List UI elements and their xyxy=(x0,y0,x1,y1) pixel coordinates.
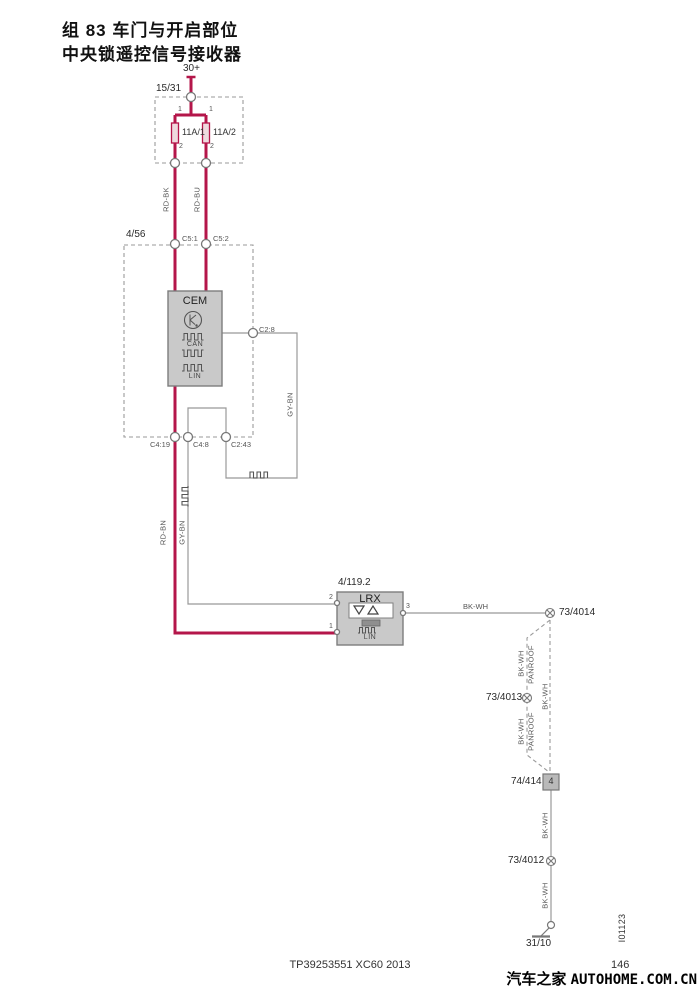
wire-label-bk-wh-panroof-lower: BK-WH xyxy=(517,702,526,762)
connector-circle-supply xyxy=(187,93,196,102)
receiver-block-icon xyxy=(362,620,380,626)
lrx-lin-label: LIN xyxy=(337,634,403,641)
wire-label-rd-bn: RD-BN xyxy=(159,503,168,563)
fuse1-pin-in: 1 xyxy=(178,106,182,113)
fuse2-pin-out: 2 xyxy=(210,143,214,150)
wire-label-panroof-lower: PANROOF xyxy=(527,702,536,762)
connector-circle-c2-43 xyxy=(222,433,231,442)
watermark: 汽车之家 AUTOHOME.COM.CN xyxy=(506,968,697,989)
connector-label-c4-8: C4:8 xyxy=(193,440,209,449)
receiver-window xyxy=(349,603,393,618)
connector-circle-c5-2 xyxy=(202,240,211,249)
connector-circle-c4-8 xyxy=(184,433,193,442)
lrx-pin2-label: 2 xyxy=(329,594,333,601)
wire-label-bk-wh-main: BK-WH xyxy=(541,667,550,727)
connector-circle-fuse1-out xyxy=(171,159,180,168)
lrx-pin1-label: 1 xyxy=(329,623,333,630)
fuse1-label: 11A/1 xyxy=(182,127,205,137)
connector-label-c2-43: C2:43 xyxy=(231,440,251,449)
lrx-pin3-label: 3 xyxy=(406,603,410,610)
wire-label-rd-bu: RD-BU xyxy=(193,170,202,230)
splice-label-73-4014: 73/4014 xyxy=(559,607,595,618)
connector-label-c5-1: C5:1 xyxy=(182,234,198,243)
wire-label-gy-bn-down: GY-BN xyxy=(178,503,187,563)
wire-label-bk-wh-panroof-upper: BK-WH xyxy=(517,634,526,694)
wire-label-gy-bn-loop: GY-BN xyxy=(286,375,295,435)
cem-name: CEM xyxy=(168,295,222,307)
connector-74-414-pin: 4 xyxy=(543,776,559,786)
ground-lead xyxy=(541,928,549,936)
watermark-en: AUTOHOME.COM.CN xyxy=(571,972,697,988)
footer-doc-code: TP39253551 XC60 2013 xyxy=(250,959,450,971)
wire-label-bk-wh-below-74414: BK-WH xyxy=(541,796,550,856)
lin-wire-to-lrx xyxy=(188,437,337,604)
wire-label-rd-bk: RD-BK xyxy=(162,170,171,230)
connector-label-c5-2: C5:2 xyxy=(213,234,229,243)
connector-label-c2-8: C2:8 xyxy=(259,325,275,334)
page-title-line1: 组 83 车门与开启部位 xyxy=(62,16,238,41)
connector-label-74-414: 74/414 xyxy=(511,776,542,787)
watermark-cn: 汽车之家 xyxy=(506,971,566,988)
jumper-wire-c48-c243 xyxy=(188,408,226,437)
bus-signal-icons xyxy=(182,472,268,507)
fuse1-pin-out: 2 xyxy=(179,143,183,150)
schematic-canvas xyxy=(0,0,700,990)
controller-icon-dot xyxy=(195,324,197,326)
square-wave-icon xyxy=(250,472,268,478)
connector-circle-c4-19 xyxy=(171,433,180,442)
fuse2-pin-in: 1 xyxy=(209,106,213,113)
wire-label-bk-wh-out: BK-WH xyxy=(463,602,488,611)
cem-box-id: 4/56 xyxy=(126,229,145,240)
connector-circle-fuse2-out xyxy=(202,159,211,168)
lrx-id: 4/119.2 xyxy=(338,577,371,588)
wire-label-bk-wh-below-4012: BK-WH xyxy=(541,866,550,926)
cem-lin-label: LIN xyxy=(168,373,222,380)
connector-circle-c2-8 xyxy=(249,329,258,338)
fuse-icon-11a1 xyxy=(172,123,179,143)
diagram-id: I01123 xyxy=(617,898,627,958)
connector-label-c4-19: C4:19 xyxy=(150,440,170,449)
cem-can-label: CAN xyxy=(168,341,222,348)
page-title-line2: 中央锁遥控信号接收器 xyxy=(62,40,242,65)
splice-label-73-4012: 73/4012 xyxy=(508,855,544,866)
fusebox-id: 15/31 xyxy=(156,83,181,94)
ground-label: 31/10 xyxy=(526,938,551,949)
fuse2-label: 11A/2 xyxy=(213,127,236,137)
connector-circle-c5-1 xyxy=(171,240,180,249)
wire-label-panroof-upper: PANROOF xyxy=(527,635,536,695)
wiring-diagram-page: 组 83 车门与开启部位 中央锁遥控信号接收器 30+ 15/31 1 1 11… xyxy=(0,0,700,990)
pin-circle-lrx-3 xyxy=(401,611,406,616)
power-supply-label: 30+ xyxy=(183,63,200,74)
lrx-name: LRX xyxy=(337,593,403,605)
rd-bn-wire xyxy=(175,386,337,633)
